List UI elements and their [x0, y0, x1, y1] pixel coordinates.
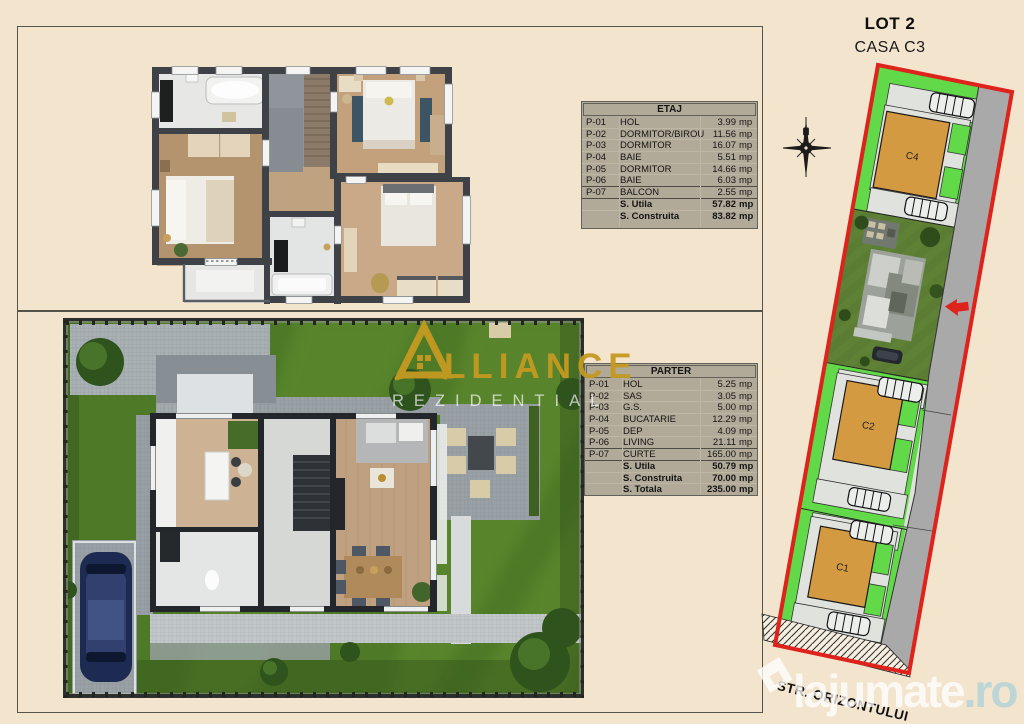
- svg-text:C1: C1: [835, 562, 850, 575]
- svg-text:LLIANCE: LLIANCE: [444, 347, 638, 386]
- svg-text:REZIDENTIAL: REZIDENTIAL: [392, 392, 609, 410]
- svg-text:C2: C2: [861, 420, 876, 433]
- svg-text:C4: C4: [905, 151, 920, 164]
